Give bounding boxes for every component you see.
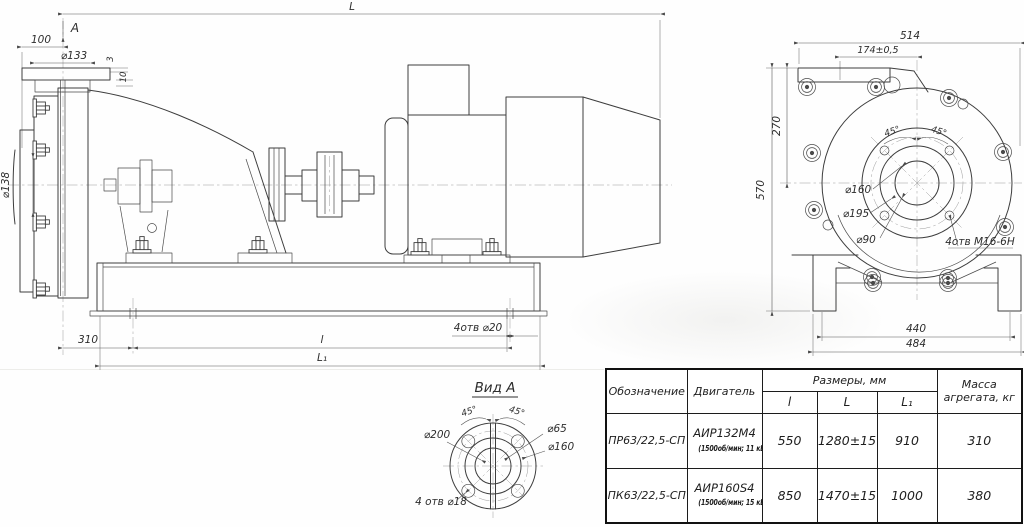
pump-casing — [58, 88, 286, 298]
dim-label-440: 440 — [906, 323, 926, 335]
view-a-title: Вид А — [475, 380, 516, 396]
col-header-L1: L₁ — [877, 391, 937, 413]
view-a-label: А — [70, 21, 79, 35]
dim-label-L: L — [349, 1, 355, 13]
dim-label-45-left: 45° — [883, 125, 901, 139]
dim-label-270: 270 — [771, 116, 783, 136]
cell-motor: АИР132М4 (1500об/мин; 11 кВт) — [687, 413, 762, 468]
dim-label-3: 3 — [106, 56, 116, 61]
dim-label-l: l — [321, 334, 324, 346]
dim-label-45-left: 45° — [460, 405, 478, 419]
dim-label-310: 310 — [78, 334, 98, 346]
col-header-motor: Двигатель — [687, 369, 762, 413]
dim-label-d195: ⌀195 — [843, 208, 870, 220]
cell-mass: 310 — [937, 413, 1022, 468]
table-row: ПР63/22,5-СП АИР132М4 (1500об/мин; 11 кВ… — [606, 413, 1022, 468]
front-base-feet — [792, 255, 1021, 311]
dim-label-514: 514 — [900, 30, 920, 42]
col-header-designation: Обозначение — [606, 369, 687, 413]
dim-label-174: 174±0,5 — [857, 45, 898, 56]
col-header-L: L — [817, 391, 877, 413]
drawing-sheet: L А 100 ⌀133 3 10 — [0, 0, 1024, 527]
dim-label-holes-20: 4отв ⌀20 — [454, 322, 503, 334]
cell-l: 850 — [762, 468, 817, 523]
dim-label-100: 100 — [31, 34, 51, 46]
col-header-dimensions: Размеры, мм — [762, 369, 937, 391]
dim-label-570: 570 — [755, 180, 767, 200]
cell-l: 550 — [762, 413, 817, 468]
flange-nut — [33, 99, 49, 117]
motor-spec: (1500об/мин; 15 кВт) — [698, 498, 762, 507]
cell-L1: 1000 — [877, 468, 937, 523]
dim-label-d138: ⌀138 — [0, 172, 12, 199]
dim-label-45-right: 45° — [507, 405, 525, 419]
electric-motor — [385, 65, 660, 263]
cell-L: 1280±15 — [817, 413, 877, 468]
mass-header-line1: Масса — [962, 378, 997, 391]
dim-label-L1: L₁ — [317, 352, 327, 364]
cell-motor: АИР160S4 (1500об/мин; 15 кВт) — [687, 468, 762, 523]
dim-label-10: 10 — [119, 72, 129, 83]
mounting-bracket — [798, 68, 928, 93]
dim-label-d65: ⌀65 — [547, 423, 567, 435]
dim-label-484: 484 — [906, 338, 926, 350]
dim-label-d160: ⌀160 — [548, 441, 575, 453]
mass-header-line2: агрегата, кг — [938, 391, 1022, 404]
view-a-detail: Вид А 45° 45° ⌀200 — [415, 380, 574, 518]
spec-table: Обозначение Двигатель Размеры, мм Масса … — [605, 368, 1023, 524]
table-row: ПК63/22,5-СП АИР160S4 (1500об/мин; 15 кВ… — [606, 468, 1022, 523]
dim-label-45-right: 45° — [929, 125, 947, 139]
col-header-mass: Масса агрегата, кг — [937, 369, 1022, 413]
side-view: L А 100 ⌀133 3 10 — [0, 1, 672, 370]
dim-label-d200: ⌀200 — [424, 429, 451, 441]
cell-designation: ПК63/22,5-СП — [606, 468, 687, 523]
dim-label-d90: ⌀90 — [856, 234, 876, 246]
col-header-l: l — [762, 391, 817, 413]
dim-label-d133: ⌀133 — [61, 50, 87, 62]
cell-designation: ПР63/22,5-СП — [606, 413, 687, 468]
cell-L: 1470±15 — [817, 468, 877, 523]
motor-spec: (1500об/мин; 11 кВт) — [698, 444, 762, 453]
cell-mass: 380 — [937, 468, 1022, 523]
base-frame — [90, 237, 547, 319]
fan-cowl — [583, 97, 660, 257]
suction-flange — [13, 96, 58, 298]
cell-L1: 910 — [877, 413, 937, 468]
dim-label-d160: ⌀160 — [845, 184, 872, 196]
front-view: 514 174±0,5 570 270 — [755, 30, 1022, 356]
terminal-box — [408, 65, 469, 115]
bearing-and-coupling — [269, 148, 374, 221]
